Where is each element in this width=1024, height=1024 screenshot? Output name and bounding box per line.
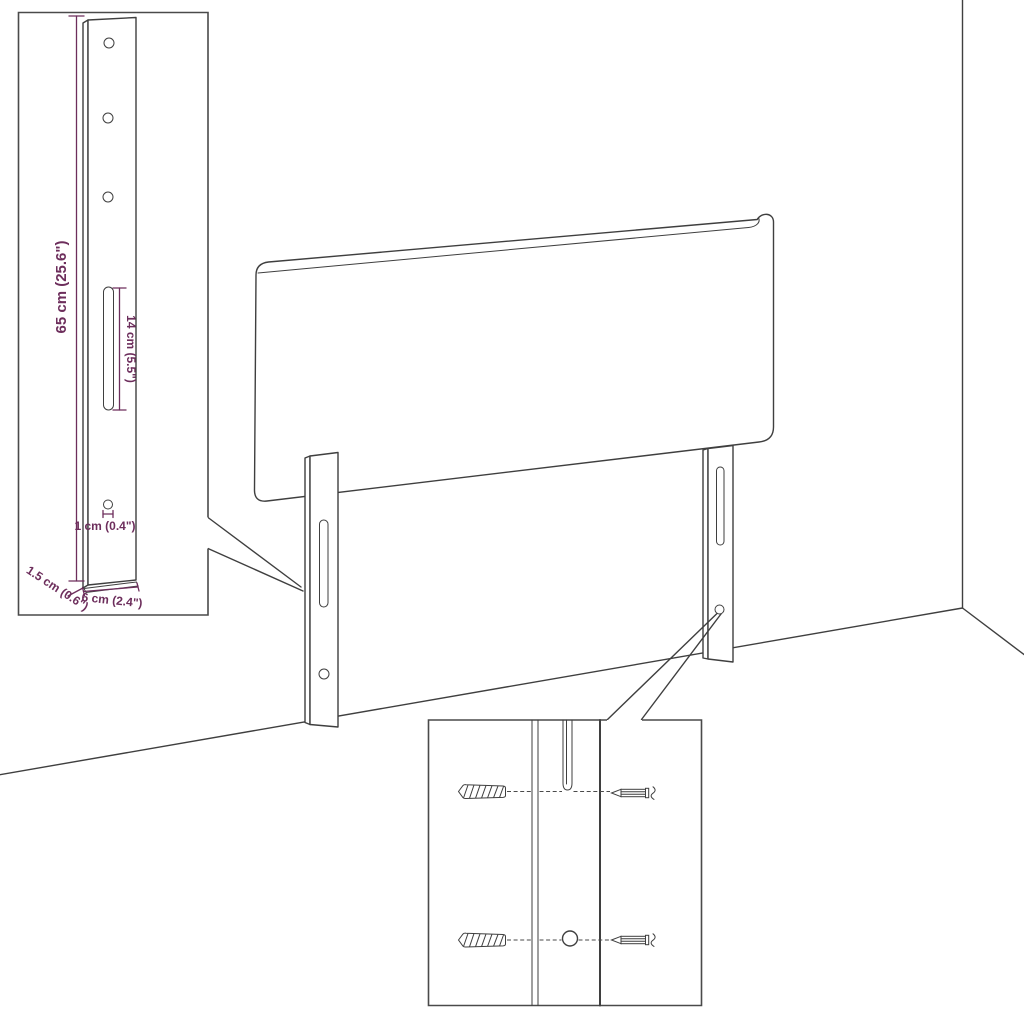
screw-head — [646, 935, 649, 944]
mounting-detail-inset — [429, 720, 702, 1006]
screw-head — [646, 788, 649, 797]
screw-shaft — [621, 936, 646, 943]
left-leg-slot — [320, 520, 329, 607]
inset-leg-side-face — [83, 20, 88, 588]
dim-height-label: 65 cm (25.6") — [53, 240, 70, 333]
screw-shaft — [621, 789, 646, 796]
screw-hole — [103, 192, 113, 202]
right-leg-side-face — [703, 449, 708, 660]
left-leg-bolt-hole — [319, 669, 329, 679]
left-leg — [305, 453, 338, 728]
callout-line — [208, 518, 301, 588]
screw-hole — [104, 38, 114, 48]
right-leg — [703, 446, 733, 663]
inset-leg-slot — [104, 287, 114, 410]
product-diagram-canvas: 65 cm (25.6") 14 cm (5.5") 1 cm (0.4") 6… — [0, 0, 1024, 1024]
inset-small-hole — [104, 500, 113, 509]
callout-line — [642, 614, 722, 720]
right-leg-bolt-hole — [715, 605, 724, 614]
dim-slot-label: 14 cm (5.5") — [124, 315, 138, 383]
right-leg-slot — [717, 467, 725, 545]
wall-plug-icon — [459, 933, 506, 947]
mounting-box — [429, 720, 702, 1006]
wall-plug-icon — [459, 785, 506, 799]
dim-hole-label: 1 cm (0.4") — [74, 519, 135, 533]
leg-detail-inset: 65 cm (25.6") 14 cm (5.5") 1 cm (0.4") 6… — [19, 13, 209, 616]
screw-hole — [103, 113, 113, 123]
assembly-diagram: 65 cm (25.6") 14 cm (5.5") 1 cm (0.4") 6… — [0, 0, 1024, 1024]
leg-detail-callout — [208, 518, 303, 592]
callout-line — [208, 549, 303, 592]
floor-line-right — [963, 608, 1024, 656]
left-leg-side-face — [305, 456, 310, 725]
